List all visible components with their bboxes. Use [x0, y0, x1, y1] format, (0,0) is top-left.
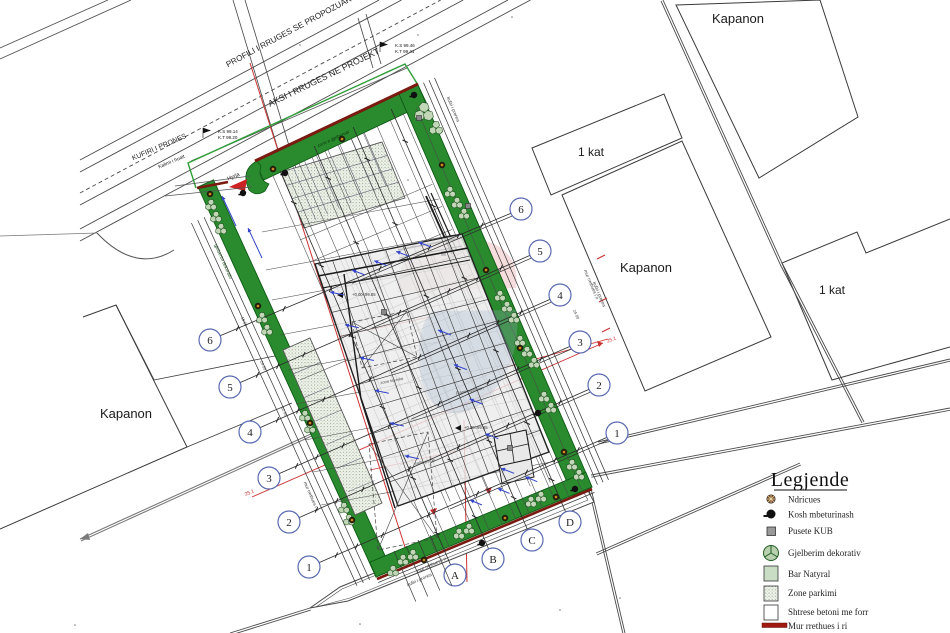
svg-text:Kosh mbeturinash: Kosh mbeturinash	[788, 510, 854, 520]
svg-text:C: C	[528, 535, 535, 547]
svg-text:D: D	[566, 517, 574, 529]
svg-text:Shtrese betoni me forr: Shtrese betoni me forr	[788, 607, 868, 617]
svg-text:B: B	[489, 554, 496, 566]
svg-text:Ndricues: Ndricues	[788, 495, 821, 505]
svg-text:4: 4	[247, 427, 253, 439]
svg-text:Zone parkimi: Zone parkimi	[788, 588, 837, 598]
svg-text:+0.00=99.85: +0.00=99.85	[464, 425, 488, 430]
svg-text:1 kat: 1 kat	[578, 145, 605, 159]
svg-text:6: 6	[518, 204, 524, 216]
svg-text:5: 5	[537, 246, 543, 258]
svg-text:A: A	[451, 570, 459, 582]
svg-text:+0.00=99.85: +0.00=99.85	[352, 292, 376, 297]
svg-text:Gjelberim dekorativ: Gjelberim dekorativ	[788, 548, 861, 558]
svg-text:1 kat: 1 kat	[819, 283, 846, 297]
svg-text:Mur rrethues i ri: Mur rrethues i ri	[788, 621, 848, 631]
svg-text:2: 2	[286, 517, 292, 529]
svg-text:1: 1	[614, 428, 620, 440]
svg-text:2: 2	[596, 380, 602, 392]
svg-text:4: 4	[557, 290, 563, 302]
svg-text:Legjende: Legjende	[771, 469, 849, 491]
svg-text:5: 5	[227, 382, 233, 394]
svg-text:1: 1	[306, 562, 312, 574]
svg-text:Kapanon: Kapanon	[712, 11, 764, 26]
svg-text:K.S 99.14: K.S 99.14	[218, 129, 238, 134]
svg-text:Bar Natyral: Bar Natyral	[788, 569, 831, 579]
svg-text:Kapanon: Kapanon	[100, 406, 152, 421]
svg-text:3: 3	[266, 473, 272, 485]
svg-text:K.T 99.41: K.T 99.41	[395, 49, 415, 54]
svg-text:Kapanon: Kapanon	[620, 260, 672, 275]
svg-text:Pusete KUB: Pusete KUB	[788, 526, 833, 536]
svg-text:3: 3	[577, 337, 583, 349]
svg-text:6: 6	[207, 335, 213, 347]
svg-text:K.T 99.20: K.T 99.20	[218, 135, 238, 140]
svg-text:K.S 99.46: K.S 99.46	[395, 43, 415, 48]
